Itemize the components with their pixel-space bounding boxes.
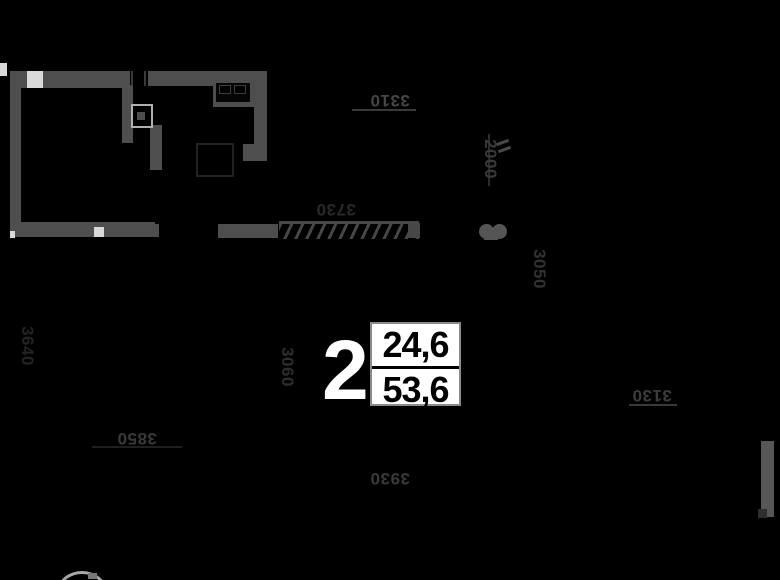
door-jamb-2	[144, 71, 146, 86]
stove-burner	[234, 85, 246, 94]
dim-label-center-vertical: 3060	[277, 334, 297, 400]
dim-label-mid: 3730	[303, 199, 369, 219]
stove-symbol	[216, 83, 250, 102]
window-gap	[27, 71, 43, 88]
wall-segment-right-edge	[761, 441, 774, 517]
door-jamb	[131, 71, 133, 86]
wall-segment-left	[10, 71, 21, 237]
dim-label-bottom-left: 3850	[104, 428, 170, 448]
furniture-outline	[196, 143, 234, 177]
wall-cut-mark-2	[10, 231, 15, 238]
area-table: 24,6 53,6	[370, 322, 461, 406]
duct-shaft-symbol	[131, 104, 153, 128]
dimension-line	[352, 109, 416, 111]
stove-burner	[219, 85, 231, 94]
dimension-line	[629, 404, 677, 406]
living-area-value: 24,6	[372, 324, 459, 369]
dim-label-right-vertical: 3050	[529, 236, 549, 302]
dimension-line	[92, 446, 182, 448]
dim-label-left-vertical: 3640	[17, 313, 37, 379]
total-area-value: 53,6	[372, 369, 459, 411]
railing-hatch	[279, 221, 419, 239]
wall-segment-right-room-left	[150, 125, 162, 170]
cropped-arc-mark	[58, 571, 106, 580]
dim-label-top: 3310	[357, 90, 423, 110]
duct-inner-mark	[137, 112, 145, 120]
wall-notch	[758, 509, 767, 518]
dim-label-right: 3130	[619, 385, 685, 405]
wall-end-cap	[408, 223, 420, 238]
door-leaf-mark	[133, 224, 159, 237]
wall-segment-right-room-right	[254, 71, 267, 161]
room-number: 2	[322, 330, 368, 410]
wall-cut-mark	[0, 63, 7, 76]
dim-label-upper-right-vertical: 2000	[480, 126, 500, 192]
dim-label-bottom-center: 3930	[357, 468, 423, 488]
wall-segment-mid	[218, 224, 278, 238]
door-threshold-mark	[94, 227, 104, 237]
fixture-base	[484, 233, 498, 240]
floor-plan: 3310 3730 3640 3060 2000 3050 3850 3930 …	[0, 0, 780, 580]
cropped-arc-blob	[88, 573, 97, 579]
wall-jog	[243, 144, 255, 161]
